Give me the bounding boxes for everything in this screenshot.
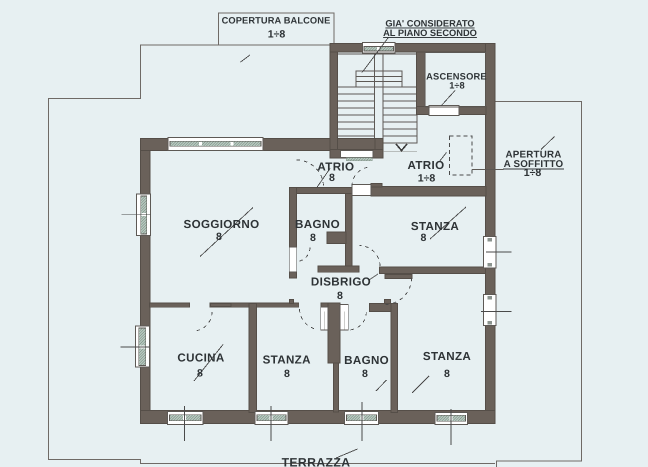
svg-text:DISBRIGO: DISBRIGO	[311, 276, 371, 289]
svg-text:8: 8	[444, 368, 450, 380]
svg-text:CUCINA: CUCINA	[177, 352, 224, 365]
svg-text:8: 8	[197, 368, 203, 380]
svg-text:STANZA: STANZA	[411, 220, 460, 233]
svg-text:STANZA: STANZA	[263, 354, 312, 367]
svg-text:8: 8	[337, 290, 343, 302]
svg-text:8: 8	[362, 368, 368, 380]
svg-text:8: 8	[216, 231, 222, 243]
svg-text:1÷8: 1÷8	[449, 81, 464, 91]
svg-text:1÷8: 1÷8	[268, 29, 286, 41]
svg-text:8: 8	[329, 172, 335, 184]
svg-text:COPERTURA BALCONE: COPERTURA BALCONE	[222, 16, 331, 26]
svg-text:8: 8	[421, 232, 427, 244]
svg-text:1÷8: 1÷8	[524, 167, 542, 179]
svg-text:BAGNO: BAGNO	[295, 218, 340, 231]
svg-text:ATRIO: ATRIO	[408, 159, 445, 172]
svg-text:ATRIO: ATRIO	[317, 161, 354, 174]
svg-text:1÷8: 1÷8	[418, 173, 436, 185]
svg-text:8: 8	[284, 368, 290, 380]
svg-text:TERRAZZA: TERRAZZA	[282, 456, 351, 467]
svg-text:8: 8	[310, 232, 316, 244]
svg-text:STANZA: STANZA	[423, 350, 472, 363]
svg-text:GIA' CONSIDERATO: GIA' CONSIDERATO	[385, 19, 474, 29]
svg-text:BAGNO: BAGNO	[344, 354, 389, 367]
svg-text:SOGGIORNO: SOGGIORNO	[184, 218, 260, 231]
svg-text:AL PIANO SECONDO: AL PIANO SECONDO	[383, 28, 477, 38]
